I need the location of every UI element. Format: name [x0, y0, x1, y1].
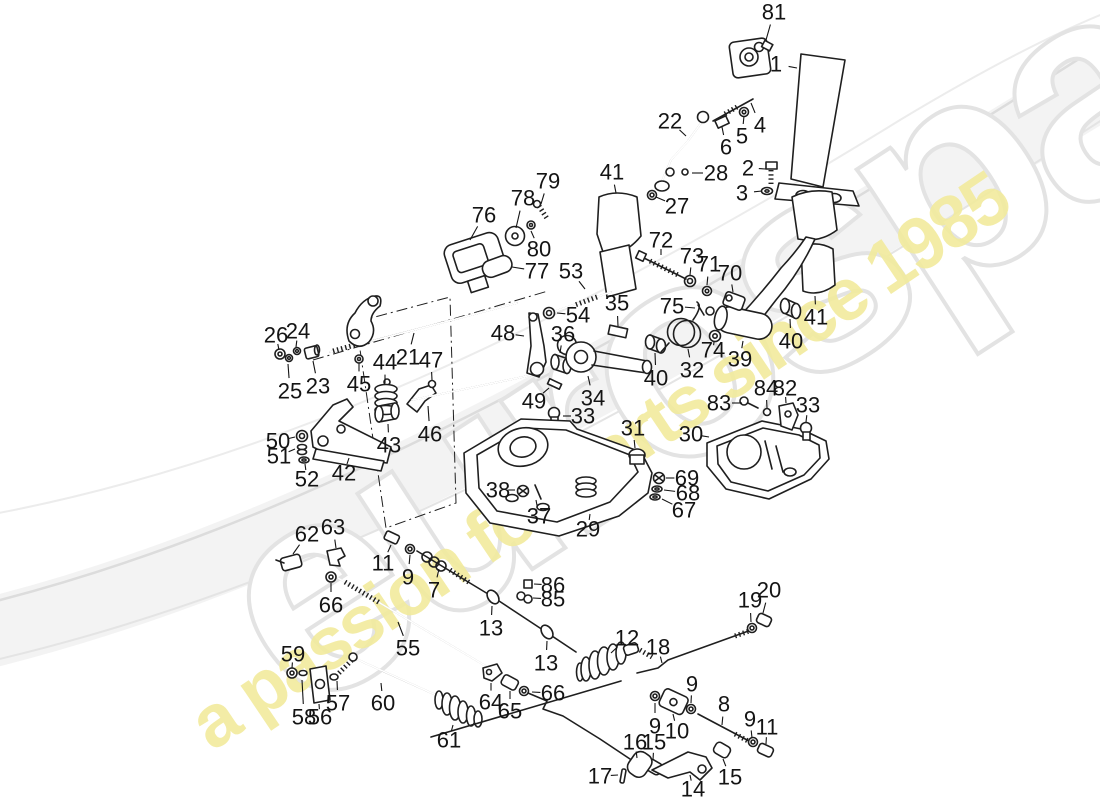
part-label-81: 81	[762, 0, 786, 25]
part-label-79: 79	[536, 169, 560, 194]
washer-3	[762, 188, 773, 195]
part-label-47: 47	[419, 348, 443, 373]
part-label-30: 30	[679, 422, 703, 447]
housing-spring	[576, 477, 596, 497]
nut-9-a	[651, 692, 660, 701]
coupler-10	[658, 688, 690, 716]
part-label-43: 43	[377, 433, 401, 458]
part-label-57: 57	[326, 691, 350, 716]
part-label-40: 40	[644, 366, 668, 391]
nut-9-b	[687, 705, 696, 714]
nut-66-upper	[326, 572, 336, 582]
washer-58	[299, 671, 307, 676]
part-label-53: 53	[559, 259, 583, 284]
part-label-78: 78	[511, 186, 535, 211]
nut-73	[685, 276, 696, 287]
part-label-49: 49	[522, 389, 546, 414]
part-label-9: 9	[744, 707, 756, 732]
part-label-65: 65	[498, 699, 522, 724]
part-label-10: 10	[665, 719, 689, 744]
bushing-15-right	[712, 741, 732, 759]
part-label-46: 46	[418, 422, 442, 447]
washer-69	[654, 473, 665, 484]
part-label-85: 85	[541, 587, 565, 612]
leader-line	[789, 66, 797, 68]
part-label-51: 51	[267, 444, 291, 469]
nut-80	[527, 221, 535, 229]
part-label-9: 9	[402, 565, 414, 590]
leader-line	[541, 193, 544, 204]
ring-45	[355, 355, 363, 363]
part-label-4: 4	[754, 113, 766, 138]
part-label-15: 15	[642, 730, 666, 755]
part-label-34: 34	[581, 386, 605, 411]
part-label-17: 17	[588, 764, 612, 789]
part-label-13: 13	[534, 651, 558, 676]
part-label-44: 44	[373, 350, 397, 375]
part-label-24: 24	[286, 319, 310, 344]
part-label-66: 66	[319, 593, 343, 618]
part-label-55: 55	[396, 636, 420, 661]
part-label-72: 72	[649, 228, 673, 253]
part-label-6: 6	[720, 135, 732, 160]
part-label-77: 77	[525, 259, 549, 284]
part-label-83: 83	[707, 391, 731, 416]
bumper-31	[629, 449, 645, 464]
part-label-8: 8	[718, 692, 730, 717]
washer-25	[286, 355, 293, 362]
part-label-31: 31	[621, 416, 645, 441]
part-label-39: 39	[728, 347, 752, 372]
part-label-42: 42	[332, 461, 356, 486]
washers-51	[298, 445, 307, 455]
part-label-60: 60	[371, 691, 395, 716]
part-label-41: 41	[600, 160, 624, 185]
leader-line	[766, 24, 770, 40]
part-label-3: 3	[736, 181, 748, 206]
washer-52	[299, 457, 309, 463]
part-label-20: 20	[757, 578, 781, 603]
part-label-9: 9	[686, 672, 698, 697]
part-label-75: 75	[660, 294, 684, 319]
sleeve-65	[500, 674, 519, 691]
leader-line	[763, 603, 766, 613]
sleeve-20	[756, 613, 773, 628]
washer-84	[764, 409, 771, 416]
bushing-23	[304, 345, 320, 359]
part-label-1: 1	[770, 52, 782, 77]
part-label-74: 74	[701, 338, 725, 363]
nut-19	[748, 624, 757, 633]
part-label-36: 36	[551, 322, 575, 347]
part-label-82: 82	[773, 376, 797, 401]
part-label-11: 11	[372, 551, 395, 576]
part-label-22: 22	[658, 109, 682, 134]
leader-line	[313, 361, 315, 373]
part-label-63: 63	[321, 515, 345, 540]
part-label-59: 59	[281, 642, 305, 667]
part-label-21: 21	[396, 345, 420, 370]
part-label-45: 45	[347, 372, 371, 397]
clip-86	[524, 580, 532, 588]
part-label-23: 23	[306, 374, 330, 399]
washer-67	[650, 494, 660, 500]
sleeve-11-lower	[757, 743, 775, 758]
leader-line	[288, 364, 289, 378]
part-label-66: 66	[541, 681, 565, 706]
part-label-15: 15	[718, 765, 742, 790]
nut-50	[297, 431, 308, 442]
part-label-40: 40	[779, 329, 803, 354]
part-label-14: 14	[681, 777, 705, 800]
part-label-41: 41	[804, 305, 828, 330]
leader-line	[751, 730, 752, 738]
part-label-25: 25	[278, 379, 302, 404]
leader-line	[516, 211, 520, 228]
nut-5	[740, 108, 749, 117]
boot-61	[435, 691, 482, 727]
washer-71	[703, 287, 712, 296]
nut-54	[544, 308, 555, 319]
part-label-35: 35	[605, 291, 629, 316]
part-label-62: 62	[295, 522, 319, 547]
pin-17	[620, 769, 626, 783]
nut-59	[287, 668, 297, 678]
washer-24	[294, 348, 301, 355]
part-label-12: 12	[615, 626, 639, 651]
part-label-70: 70	[718, 261, 742, 286]
accelerator-linkage-bottom	[620, 613, 775, 784]
part-label-52: 52	[295, 467, 319, 492]
part-label-33: 33	[796, 393, 820, 418]
part-label-37: 37	[527, 504, 551, 529]
clevis-64	[483, 664, 502, 681]
grommet-38	[518, 486, 529, 497]
nut-9-upper	[406, 545, 415, 554]
part-label-76: 76	[472, 203, 496, 228]
part-label-13: 13	[479, 616, 503, 641]
part-label-73: 73	[680, 244, 704, 269]
part-label-27: 27	[665, 194, 689, 219]
part-label-38: 38	[486, 478, 510, 503]
part-label-11: 11	[756, 715, 779, 740]
nut-26	[275, 349, 285, 359]
pedals-exploded-diagram: eurospares a passion for parts since 198…	[0, 0, 1100, 800]
part-label-18: 18	[646, 635, 670, 660]
part-label-29: 29	[576, 517, 600, 542]
part-label-28: 28	[704, 161, 728, 186]
part-label-48: 48	[491, 321, 515, 346]
part-label-7: 7	[428, 578, 440, 603]
leader-line	[722, 717, 723, 725]
washer-68	[652, 486, 662, 492]
washer-78	[506, 227, 525, 246]
part-label-61: 61	[437, 728, 461, 753]
part-label-67: 67	[672, 498, 696, 523]
rod-8	[698, 714, 749, 741]
nut-66-lower	[520, 687, 529, 696]
part-label-26: 26	[264, 323, 288, 348]
part-label-2: 2	[742, 156, 754, 181]
ring-27	[648, 191, 657, 200]
part-label-5: 5	[736, 124, 748, 149]
parts-diagram-page: eurospares a passion for parts since 198…	[0, 0, 1100, 800]
